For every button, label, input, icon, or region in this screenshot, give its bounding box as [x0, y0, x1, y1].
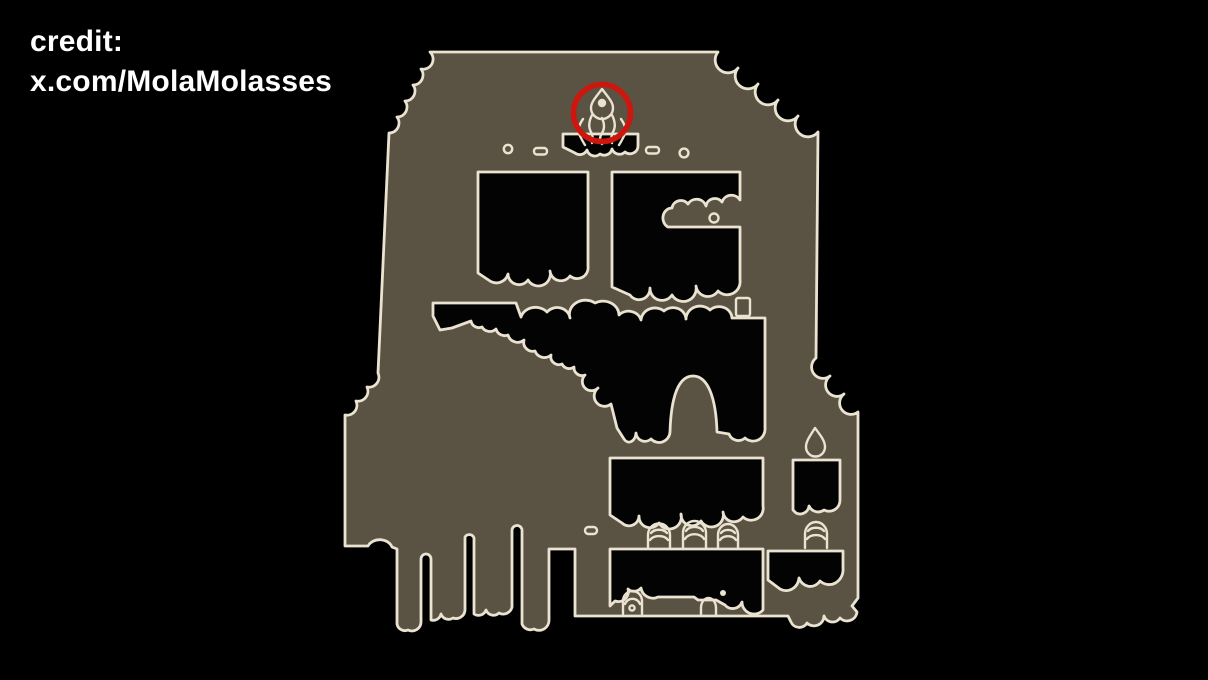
credit-label: credit:	[30, 22, 332, 62]
room-upper-right	[612, 172, 740, 301]
room-right	[793, 460, 840, 514]
room-ledge-dot	[710, 214, 719, 223]
map-canvas	[0, 0, 1208, 680]
platform-right	[768, 551, 843, 591]
credit-handle: x.com/MolaMolasses	[30, 62, 332, 102]
room-upper-left	[478, 172, 588, 286]
credit-text: credit: x.com/MolaMolasses	[30, 22, 332, 101]
floor-dot	[720, 590, 726, 596]
map-dot-left	[504, 145, 512, 153]
map-dot-right	[680, 149, 689, 158]
room-lower-middle	[610, 458, 763, 529]
cavern-notch	[736, 298, 750, 316]
small-dash-mark	[585, 527, 597, 534]
game-map	[0, 0, 1208, 680]
map-dash-right	[646, 147, 659, 154]
map-dash-left	[534, 148, 547, 155]
flame-core-dot	[598, 99, 606, 107]
